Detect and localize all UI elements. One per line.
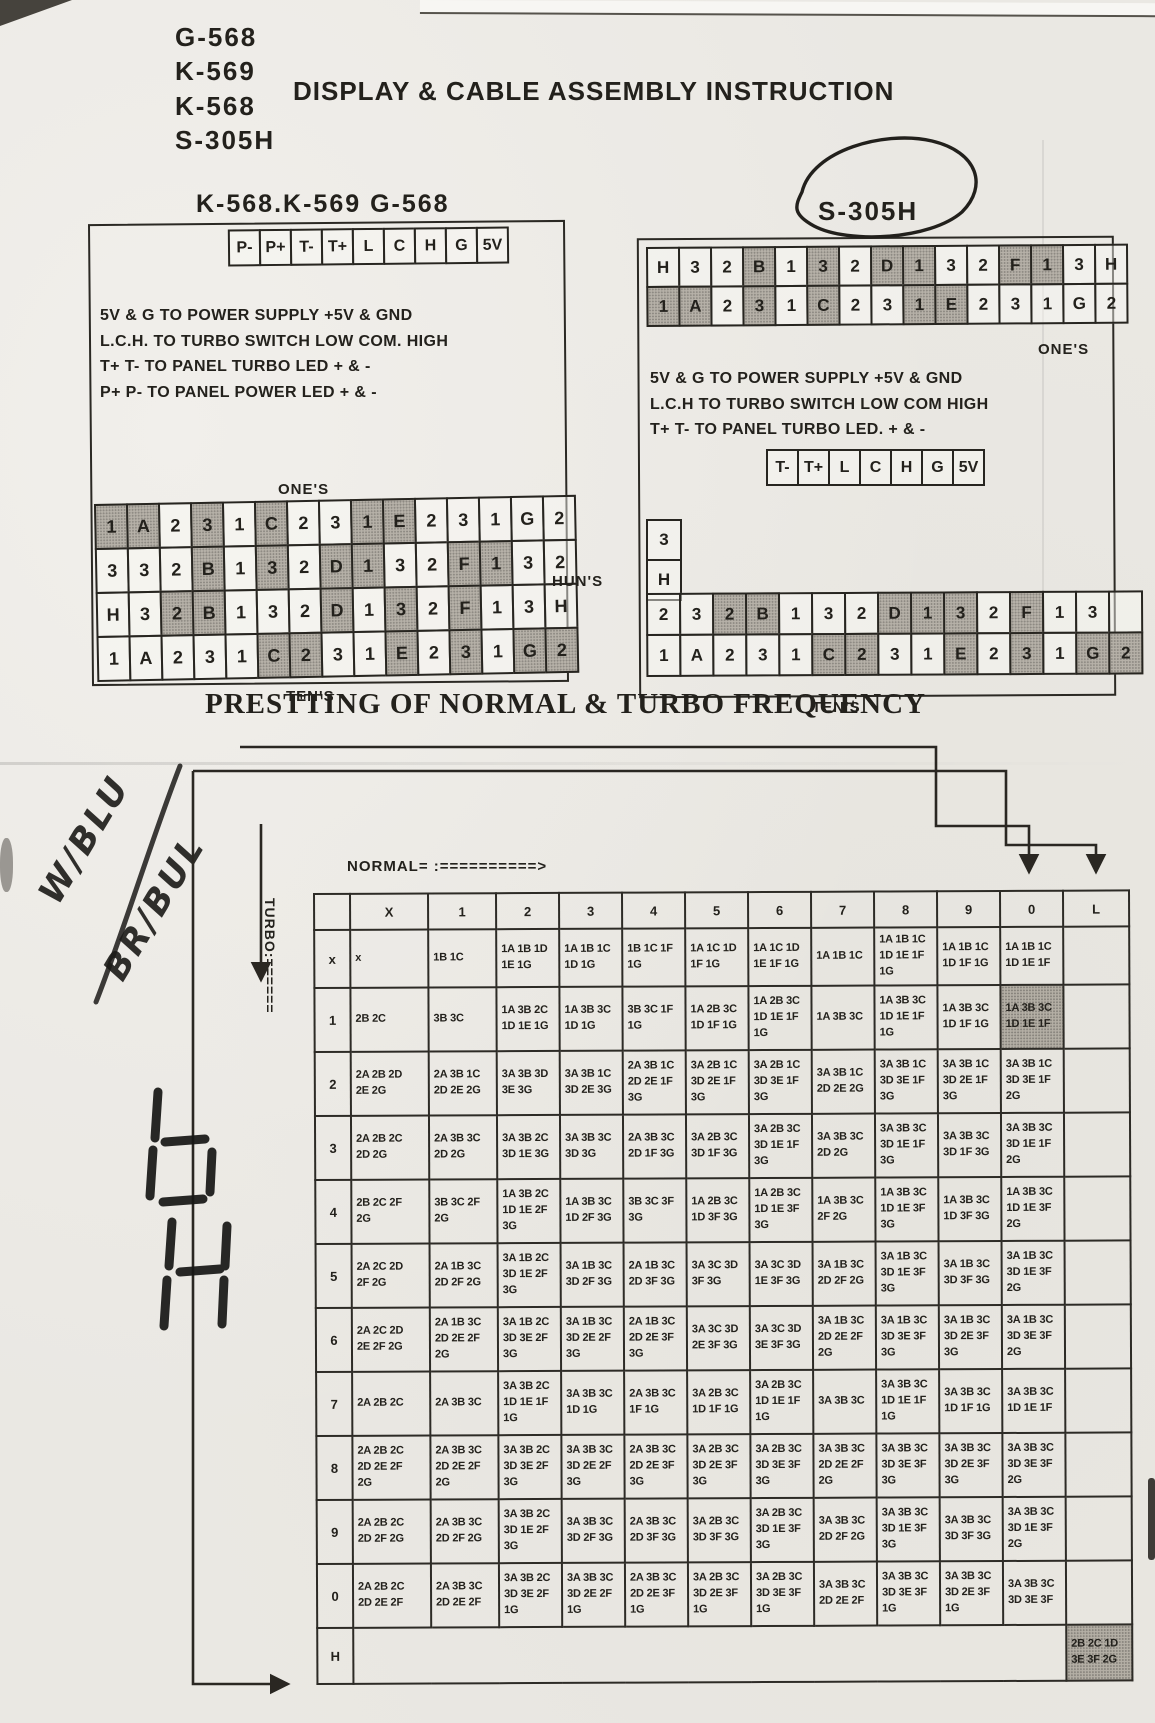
connector-pin-cell: T+ <box>321 228 354 265</box>
segment-code-cell: E <box>934 284 968 325</box>
segment-code-cell: G <box>512 627 547 674</box>
paper-crease <box>0 762 1155 765</box>
freq-cell <box>353 1625 1066 1684</box>
freq-cell: 3A 3B 3C3D 2E 3F3G <box>939 1433 1002 1497</box>
freq-cell <box>1065 1304 1131 1368</box>
connector-pin-cell: H <box>890 449 923 486</box>
freq-col-header: 7 <box>811 892 874 928</box>
freq-cell <box>1065 1240 1131 1304</box>
connector-pin-cell: T- <box>766 449 799 486</box>
segment-code-cell: 2 <box>288 588 323 635</box>
ones-label-right: ONE'S <box>1038 341 1089 358</box>
freq-cell: 2A 2C 2D2F 2G <box>352 1243 430 1307</box>
note-line: L.C.H. TO TURBO SWITCH LOW COM. HIGH <box>100 329 448 355</box>
freq-cell: 3A 1B 2C3D 3E 2F3G <box>498 1307 561 1371</box>
freq-cell: 3A 3B 3C2D 2F 2G <box>814 1498 877 1562</box>
freq-cell: 1A 1B 1D1E 1G <box>496 929 559 987</box>
freq-row-label: x <box>314 930 350 988</box>
freq-cell: 2A 2B 2C2D 2G <box>351 1115 429 1179</box>
paper-tear-edge <box>420 0 1155 17</box>
freq-cell: 3B 3C <box>428 987 496 1051</box>
segment-code-cell: 3 <box>811 592 846 635</box>
segment-code-cell: 2 <box>712 633 747 676</box>
frequency-table: X1234567890Lxx1B 1C1A 1B 1D1E 1G1A 1B 1C… <box>313 889 1133 1685</box>
segment-code-cell: 2 <box>544 627 579 674</box>
segment-code-cell: 3 <box>943 591 978 634</box>
freq-col-header: 2 <box>496 893 559 929</box>
pin-grid-row: 1A231C231E231G2 <box>648 633 1143 677</box>
right-panel-heading: S-305H <box>818 196 918 227</box>
freq-cell: x <box>350 929 428 987</box>
right-panel-notes: 5V & G TO POWER SUPPLY +5V & GND L.C.H T… <box>650 366 989 443</box>
segment-code-cell: 3 <box>1009 632 1044 675</box>
segment-code-cell: G <box>1062 283 1096 324</box>
freq-cell: 3A 1B 2C3D 1E 2F3G <box>498 1243 561 1307</box>
freq-cell: 3A 3C 3D2E 3F 3G <box>687 1306 750 1370</box>
freq-cell: 2A 3B 3C2D 2E 3F1G <box>625 1562 688 1626</box>
freq-cell: 2A 2B 2C <box>352 1371 430 1435</box>
segment-code-cell: 1 <box>351 542 386 589</box>
freq-cell: 3A 3B 3C3D 1E 3F3G <box>877 1497 940 1561</box>
segment-code-cell: 1 <box>1042 591 1077 634</box>
segment-code-cell: 1 <box>224 589 259 636</box>
segment-code-cell: B <box>191 546 226 593</box>
freq-row-label: 6 <box>316 1308 352 1372</box>
freq-cell: 3A 3B 3C3D 3E 3F2G <box>1002 1433 1065 1497</box>
segment-code-cell: H <box>646 247 680 288</box>
freq-cell: 2A 1B 3C2D 2F 2G <box>430 1243 498 1307</box>
pin-grid-row: 3 <box>648 521 682 561</box>
freq-cell: 3A 3B 3C1D 1E 1F <box>1002 1369 1065 1433</box>
segment-code-cell: 2 <box>710 285 744 326</box>
segment-code-cell: 2 <box>416 629 451 676</box>
segment-code-cell: 1 <box>778 633 813 676</box>
freq-cell: 1A 3B 3C1D 1E 1F1G <box>874 985 937 1049</box>
freq-cell: 1A 2B 3C1D 1E 1F1G <box>748 986 811 1050</box>
segment-code-cell: 3 <box>320 631 355 678</box>
freq-col-header: L <box>1063 890 1129 926</box>
segment-code-cell: 2 <box>416 585 451 632</box>
left-connector-strip: P-P+T-T+LCHG5V <box>230 229 509 267</box>
segment-code-cell: 2 <box>1108 631 1143 674</box>
freq-cell: 1A 1B 1C1D 1E 1F1G <box>874 927 937 985</box>
segment-code-cell: 1 <box>352 630 387 677</box>
freq-cell: 2A 1B 3C2D 2E 3F3G <box>624 1306 687 1370</box>
freq-cell: 1A 3B 3C1D 1G <box>559 987 622 1051</box>
freq-row: 62A 2C 2D2E 2F 2G2A 1B 3C2D 2E 2F2G3A 1B… <box>316 1304 1131 1372</box>
freq-cell: 1A 3B 2C1D 1E 1G <box>496 987 559 1051</box>
freq-cell: 3A 2B 3C3D 1E 3F3G <box>751 1498 814 1562</box>
freq-row-label: H <box>317 1628 353 1684</box>
freq-cell: 3A 1B 3C3D 2E 2F3G <box>561 1307 624 1371</box>
segment-code-cell: F <box>447 541 482 588</box>
freq-row: 92A 2B 2C2D 2F 2G2A 3B 3C2D 2F 2G3A 3B 2… <box>317 1496 1132 1564</box>
segment-code-cell: 1 <box>350 498 385 545</box>
segment-code-cell: 2 <box>1094 283 1128 324</box>
freq-cell: 2A 3B 3C2D 3F 3G <box>625 1498 688 1562</box>
freq-cell: 3A 3B 1C3D 3E 1F3G <box>875 1049 938 1113</box>
freq-row-label: 7 <box>316 1372 352 1436</box>
pin-grid-row: 232B132D132F13 <box>648 592 1143 636</box>
freq-row: 52A 2C 2D2F 2G2A 1B 3C2D 2F 2G3A 1B 2C3D… <box>316 1240 1131 1308</box>
segment-code-cell: 1 <box>910 591 945 634</box>
segment-code-cell: 3 <box>877 633 912 676</box>
freq-cell: 3A 3B 2C3D 1E 2F3G <box>499 1499 562 1563</box>
pin-grid-row: 1A231C231E231G2 <box>648 285 1128 327</box>
freq-col-header: 4 <box>622 892 685 928</box>
segment-code-cell: 2 <box>844 592 879 635</box>
freq-cell: 3A 3B 3C1D 1E 1F1G <box>876 1369 939 1433</box>
segment-code-cell: 1 <box>1042 632 1077 675</box>
freq-cell <box>1064 1176 1130 1240</box>
freq-cell: 2A 3B 3C2D 2E 2F2G <box>430 1435 498 1499</box>
segment-code-cell: 2 <box>844 633 879 676</box>
freq-cell: 3B 3C 2F2G <box>429 1179 497 1243</box>
freq-cell: 3A 3B 3C3D 2E 2F3G <box>561 1435 624 1499</box>
arrow-to-col-0 <box>240 747 1029 872</box>
segment-code-cell: A <box>128 635 163 682</box>
segment-code-cell: 3 <box>742 285 776 326</box>
freq-cell: 3B 3C 3F3G <box>623 1178 686 1242</box>
freq-cell: 1A 1B 1C1D 1G <box>559 929 622 987</box>
segment-code-cell: 2 <box>287 544 322 591</box>
freq-cell: 2A 2B 2C2D 2E 2F2G <box>352 1435 430 1499</box>
freq-cell: 3A 2B 3C3D 3E 3F1G <box>751 1562 814 1626</box>
segment-code-cell: E <box>384 630 419 677</box>
freq-cell: 2A 2C 2D2E 2F 2G <box>352 1307 430 1371</box>
freq-cell: 1B 1C 1F1G <box>622 928 685 986</box>
freq-cell: 3A 3B 3C3D 3E 3F3G <box>876 1433 939 1497</box>
model-list: G-568 K-569 K-568 S-305H <box>175 20 275 157</box>
freq-cell: 2B 2C 1D3E 3F 2G <box>1066 1624 1132 1680</box>
freq-cell: 3A 2B 3C1D 1F 1G <box>687 1370 750 1434</box>
segment-code-cell: 3 <box>318 499 353 546</box>
freq-cell: 3A 1B 3C3D 1E 3F3G <box>876 1241 939 1305</box>
note-line: 5V & G TO POWER SUPPLY +5V & GND <box>650 366 989 392</box>
ones-label-left: ONE'S <box>278 481 329 498</box>
scan-edge-mark <box>1148 1478 1155 1560</box>
segment-code-cell: 3 <box>255 544 290 591</box>
segment-code-cell: F <box>448 585 483 632</box>
segment-code-cell: 2 <box>542 495 577 542</box>
segment-code-cell: 1 <box>479 540 514 587</box>
segment-code-cell: 1 <box>1030 244 1064 285</box>
handwritten-annotation: BR/BUL <box>96 828 214 987</box>
segment-code-cell: 3 <box>646 519 682 561</box>
freq-cell: 1A 3B 3C1D 1E 3F3G <box>875 1177 938 1241</box>
connector-pin-cell: P- <box>228 229 261 266</box>
freq-cell: 3A 2B 3C3D 1F 3G <box>686 1114 749 1178</box>
freq-row-label: 4 <box>315 1180 351 1244</box>
segment-code-cell: 2 <box>288 632 323 679</box>
freq-cell: 2A 2B 2C2D 2F 2G <box>353 1499 431 1563</box>
segment-code-cell: 3 <box>190 502 225 549</box>
segment-code-cell: 3 <box>678 247 712 288</box>
segment-code-cell: 2 <box>976 591 1011 634</box>
freq-cell: 3A 3B 3C3D 2E 3F1G <box>940 1561 1003 1625</box>
freq-cell: 1A 1B 1C <box>811 928 874 986</box>
freq-head: X1234567890L <box>314 890 1129 930</box>
right-side-cells: 3H <box>648 521 682 601</box>
freq-row: 72A 2B 2C2A 3B 3C3A 3B 2C1D 1E 1F1G3A 3B… <box>316 1368 1131 1436</box>
segment-code-cell: C <box>254 500 289 547</box>
note-line: T+ T- TO PANEL TURBO LED. + & - <box>650 417 989 443</box>
segment-code-cell: C <box>806 285 840 326</box>
handdrawn-seven-segment-sketch <box>164 1222 227 1326</box>
segment-code-cell: 1 <box>646 286 680 327</box>
segment-code-cell: D <box>319 543 354 590</box>
segment-code-cell: 1 <box>774 285 808 326</box>
segment-code-cell: 1 <box>222 501 257 548</box>
freq-cell <box>1064 1112 1130 1176</box>
freq-cell: 3A 3C 3D1E 3F 3G <box>750 1242 813 1306</box>
freq-cell <box>1066 1496 1132 1560</box>
freq-cell: 1A 1C 1D1E 1F 1G <box>748 928 811 986</box>
freq-col-header <box>314 894 350 930</box>
connector-pin-cell: 5V <box>476 227 509 264</box>
connector-pin-cell: C <box>859 449 892 486</box>
freq-cell: 1A 3B 2C1D 1E 2F3G <box>497 1179 560 1243</box>
segment-code-cell: F <box>998 244 1032 285</box>
connector-pin-cell: L <box>828 449 861 486</box>
freq-cell: 1A 1B 1C1D 1F 1G <box>937 927 1000 985</box>
freq-cell: 1A 3B 3C1D 1E 1F <box>1000 985 1063 1049</box>
freq-col-header: 1 <box>428 893 496 929</box>
freq-cell: 3A 1B 3C3D 3E 3F2G <box>1002 1305 1065 1369</box>
freq-cell: 3A 1B 3C3D 3E 3F3G <box>876 1305 939 1369</box>
freq-cell: 3A 3B 2C1D 1E 1F1G <box>498 1371 561 1435</box>
right-digit-grid-top: H32B132D132F13H1A231C231E231G2 <box>648 246 1129 327</box>
freq-row-label: 1 <box>314 988 350 1052</box>
freq-cell: 3A 3B 3C1D 1F 1G <box>939 1369 1002 1433</box>
pin-grid-row: 1A231C231E231G2 <box>99 629 580 682</box>
model-number: S-305H <box>175 123 275 157</box>
segment-code-cell: 3 <box>127 547 162 594</box>
freq-cell: 3A 3C 3D3E 3F 3G <box>750 1306 813 1370</box>
freq-cell: 2A 3B 3C2D 2F 2G <box>431 1499 499 1563</box>
freq-row-label: 5 <box>316 1244 352 1308</box>
segment-code-cell: 2 <box>160 634 195 681</box>
freq-cell: 1A 3B 3C2F 2G <box>812 1178 875 1242</box>
segment-code-cell: 1 <box>224 633 259 680</box>
freq-row: 22A 2B 2D2E 2G2A 3B 1C2D 2E 2G3A 3B 3D3E… <box>315 1048 1130 1116</box>
left-panel-notes: 5V & G TO POWER SUPPLY +5V & GND L.C.H. … <box>100 303 448 405</box>
segment-code-cell: 3 <box>934 245 968 286</box>
freq-row-label: 3 <box>315 1116 351 1180</box>
freq-cell: 2A 3B 1C2D 2E 1F3G <box>623 1050 686 1114</box>
segment-code-cell: 1 <box>910 632 945 675</box>
freq-cell: 2B 2C 2F2G <box>351 1179 429 1243</box>
segment-code-cell: 1 <box>646 634 681 677</box>
page-title: DISPLAY & CABLE ASSEMBLY INSTRUCTION <box>293 76 894 107</box>
freq-row-label: 8 <box>316 1436 352 1500</box>
segment-code-cell: 1 <box>96 635 131 682</box>
scanned-instruction-sheet: G-568 K-569 K-568 S-305H DISPLAY & CABLE… <box>0 0 1155 1723</box>
segment-code-cell: 1 <box>1030 283 1064 324</box>
connector-pin-cell: G <box>445 227 478 264</box>
segment-code-cell: H <box>96 591 131 638</box>
freq-cell: 1A 1B 1C1D 1E 1F <box>1000 927 1063 985</box>
freq-cell: 2A 3B 3C2D 2E 3F3G <box>624 1434 687 1498</box>
connector-pin-cell: P+ <box>259 229 292 266</box>
segment-code-cell: 1 <box>480 628 515 675</box>
freq-cell: 2A 2B 2C2D 2E 2F <box>353 1563 431 1627</box>
freq-header-row: X1234567890L <box>314 890 1129 930</box>
segment-code-cell: 1 <box>94 503 129 550</box>
segment-code-cell: B <box>192 590 227 637</box>
freq-cell: 1A 2B 3C1D 3F 3G <box>686 1178 749 1242</box>
freq-cell: 3A 1B 3C3D 2F 3G <box>561 1243 624 1307</box>
freq-cell: 3A 3B 3C <box>813 1370 876 1434</box>
freq-row: H2B 2C 1D3E 3F 2G <box>317 1624 1132 1684</box>
freq-cell: 3B 3C 1F1G <box>622 986 685 1050</box>
freq-cell: 3A 2B 3C3D 3F 3G <box>688 1498 751 1562</box>
left-digit-grid: 1A231C231E231G2332B132D132F132H32B132D13… <box>96 497 579 682</box>
note-line: P+ P- TO PANEL POWER LED + & - <box>100 380 448 406</box>
freq-cell: 3A 2B 3C3D 2E 3F1G <box>688 1562 751 1626</box>
freq-cell: 3A 3C 3D3F 3G <box>687 1242 750 1306</box>
freq-row: 42B 2C 2F2G3B 3C 2F2G1A 3B 2C1D 1E 2F3G1… <box>315 1176 1130 1244</box>
pin-grid-row: T-T+LCHG5V <box>768 451 985 486</box>
freq-col-header: 8 <box>874 891 937 927</box>
segment-code-cell: B <box>742 246 776 287</box>
pin-grid-row: P-P+T-T+LCHG5V <box>230 229 509 267</box>
segment-code-cell: G <box>510 495 545 542</box>
segment-code-cell: 3 <box>998 283 1032 324</box>
freq-cell: 2A 2B 2D2E 2G <box>351 1051 429 1115</box>
freq-cell: 3A 3B 3C3D 3E 3F <box>1003 1561 1066 1625</box>
freq-cell: 3A 3B 1C3D 2E 1F3G <box>938 1049 1001 1113</box>
freq-cell: 3A 3B 3C3D 2F 3G <box>562 1499 625 1563</box>
segment-code-cell: A <box>679 634 714 677</box>
freq-cell: 3A 3B 3D3E 3G <box>497 1051 560 1115</box>
freq-cell: 1B 1C <box>428 929 496 987</box>
handdrawn-seven-segment-sketch <box>150 1092 212 1202</box>
freq-cell: 3A 3B 3C3D 1E 1F3G <box>875 1113 938 1177</box>
freq-cell: 3A 2B 1C3D 3E 1F3G <box>749 1050 812 1114</box>
freq-row-label: 0 <box>317 1564 353 1628</box>
freq-row-label: 9 <box>317 1500 353 1564</box>
freq-cell: 3A 1B 3C3D 3F 3G <box>939 1241 1002 1305</box>
freq-cell: 3A 1B 3C2D 2F 2G <box>813 1242 876 1306</box>
segment-code-cell: 3 <box>870 284 904 325</box>
segment-code-cell: 3 <box>806 246 840 287</box>
right-digit-grid-bottom: 232B132D132F131A231C231E231G2 <box>648 592 1143 677</box>
freq-cell: 2B 2C <box>350 987 428 1051</box>
freq-cell: 3A 3B 3C2D 2E 2F2G <box>813 1434 876 1498</box>
freq-cell: 3A 2B 1C3D 2E 1F3G <box>686 1050 749 1114</box>
freq-cell: 2A 3B 3C2D 2E 2F <box>431 1563 499 1627</box>
freq-cell: 3A 3B 3C3D 2E 2F1G <box>562 1563 625 1627</box>
segment-code-cell: D <box>320 587 355 634</box>
freq-cell: 3A 2B 3C3D 2E 3F3G <box>687 1434 750 1498</box>
segment-code-cell: 3 <box>256 588 291 635</box>
freq-cell: 3A 3B 1C2D 2E 2G <box>812 1050 875 1114</box>
segment-code-cell: 2 <box>646 593 681 636</box>
segment-code-cell: D <box>870 245 904 286</box>
freq-cell: 1A 3B 3C <box>811 986 874 1050</box>
segment-code-cell: C <box>256 632 291 679</box>
segment-code-cell: G <box>1075 632 1110 675</box>
normal-axis-label: NORMAL= :==========> <box>347 858 547 875</box>
segment-code-cell: 3 <box>446 497 481 544</box>
segment-code-cell: 1 <box>480 584 515 631</box>
segment-code-cell: 1 <box>478 496 513 543</box>
freq-cell: 1A 2B 3C1D 1E 3F3G <box>749 1178 812 1242</box>
freq-row: 02A 2B 2C2D 2E 2F2A 3B 3C2D 2E 2F3A 3B 2… <box>317 1560 1132 1628</box>
segment-code-cell: 2 <box>976 632 1011 675</box>
freq-cell: 3A 2B 3C1D 1E 1F1G <box>750 1370 813 1434</box>
freq-col-header: 9 <box>937 891 1000 927</box>
segment-code-cell: 2 <box>710 246 744 287</box>
segment-code-cell: 2 <box>158 502 193 549</box>
segment-code-cell: 1 <box>223 545 258 592</box>
right-connector-strip: T-T+LCHG5V <box>768 451 985 486</box>
freq-cell: 3A 3B 3C3D 3G <box>560 1115 623 1179</box>
freq-cell: 3A 3B 1C3D 3E 1F2G <box>1001 1049 1064 1113</box>
segment-code-cell: 3 <box>192 634 227 681</box>
freq-cell <box>1063 984 1129 1048</box>
segment-code-cell: 3 <box>1075 591 1110 634</box>
freq-col-header: 5 <box>685 892 748 928</box>
freq-row: 32A 2B 2C2D 2G2A 3B 3C2D 2G3A 3B 2C3D 1E… <box>315 1112 1130 1180</box>
freq-cell: 3A 3B 3C3D 1E 3F2G <box>1003 1497 1066 1561</box>
connector-pin-cell: G <box>921 449 954 486</box>
segment-code-cell: A <box>678 286 712 327</box>
segment-code-cell: 2 <box>415 541 450 588</box>
freq-cell: 3A 1B 3C3D 2E 3F3G <box>939 1305 1002 1369</box>
freq-cell: 3A 3B 3C2D 2E 2F <box>814 1562 877 1626</box>
freq-cell: 1A 3B 3C1D 2F 3G <box>560 1179 623 1243</box>
freq-cell: 3A 3B 3C2D 2G <box>812 1114 875 1178</box>
freq-cell: 2A 1B 3C2D 2E 2F2G <box>430 1307 498 1371</box>
connector-pin-cell: 5V <box>952 449 985 486</box>
freq-row: xx1B 1C1A 1B 1D1E 1G1A 1B 1C1D 1G1B 1C 1… <box>314 926 1129 988</box>
left-panel-heading: K-568.K-569 G-568 <box>196 190 450 219</box>
freq-cell: 2A 3B 1C2D 2E 2G <box>429 1051 497 1115</box>
huns-label: HUN'S <box>552 573 603 590</box>
freq-cell <box>1064 1048 1130 1112</box>
note-line: 5V & G TO POWER SUPPLY +5V & GND <box>100 303 448 329</box>
frequency-table-title: PRESTTING OF NORMAL & TURBO FREQUENCY <box>205 688 926 721</box>
segment-code-cell: 1 <box>902 245 936 286</box>
segment-code-cell: 2 <box>414 497 449 544</box>
freq-row-label: 2 <box>315 1052 351 1116</box>
segment-code-cell: 1 <box>352 586 387 633</box>
turbo-axis-label: TURBO:====== <box>262 898 278 1018</box>
segment-code-cell: C <box>811 633 846 676</box>
note-line: L.C.H TO TURBO SWITCH LOW COM HIGH <box>650 392 989 418</box>
segment-code-cell: 2 <box>838 284 872 325</box>
freq-cell: 2A 3B 3C2D 1F 3G <box>623 1114 686 1178</box>
segment-code-cell: 2 <box>966 245 1000 286</box>
freq-col-header: 0 <box>1000 891 1063 927</box>
freq-cell: 2A 3B 3C <box>430 1371 498 1435</box>
segment-code-cell: 3 <box>511 539 546 586</box>
freq-row: 12B 2C3B 3C1A 3B 2C1D 1E 1G1A 3B 3C1D 1G… <box>314 984 1129 1052</box>
freq-cell: 1A 2B 3C1D 1F 1G <box>685 986 748 1050</box>
segment-code-cell: 3 <box>128 591 163 638</box>
freq-cell: 1A 3B 3C1D 3F 3G <box>938 1177 1001 1241</box>
freq-cell: 2A 3B 3C2D 2G <box>429 1115 497 1179</box>
segment-code-cell: 2 <box>160 590 195 637</box>
segment-code-cell: 3 <box>679 593 714 636</box>
scan-corner-shadow <box>0 0 72 26</box>
segment-code-cell: E <box>382 498 417 545</box>
freq-cell <box>1066 1560 1132 1624</box>
segment-code-cell: 1 <box>774 246 808 287</box>
scan-smudge <box>0 838 13 892</box>
